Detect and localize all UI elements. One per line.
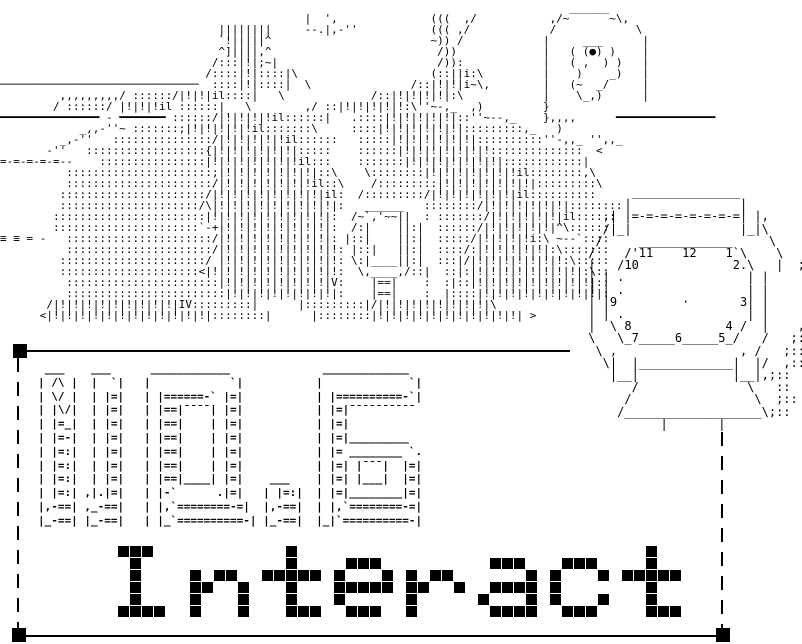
selection-handle-bottom-right[interactable] [716, 628, 730, 642]
selection-handle-bottom-left[interactable] [12, 628, 26, 642]
selection-edge-top [27, 350, 570, 352]
selection-handle-top-left[interactable] [13, 344, 27, 358]
selection-edge-bottom [25, 635, 717, 637]
ascii-artwork-canvas: ______ | ', ((( ,/ ,/~ ~\, |||||||| --.|… [0, 0, 802, 644]
no6-title-ascii: ___ ___ ____________ _____________ | /\ … [38, 362, 422, 528]
selection-edge-left [17, 358, 19, 628]
wall-clock-ascii: _______________ | | ,| |=-=-=-=-=-=-=-=|… [581, 186, 802, 430]
interact-pixel-text [118, 546, 688, 620]
selection-edge-right [721, 432, 723, 628]
